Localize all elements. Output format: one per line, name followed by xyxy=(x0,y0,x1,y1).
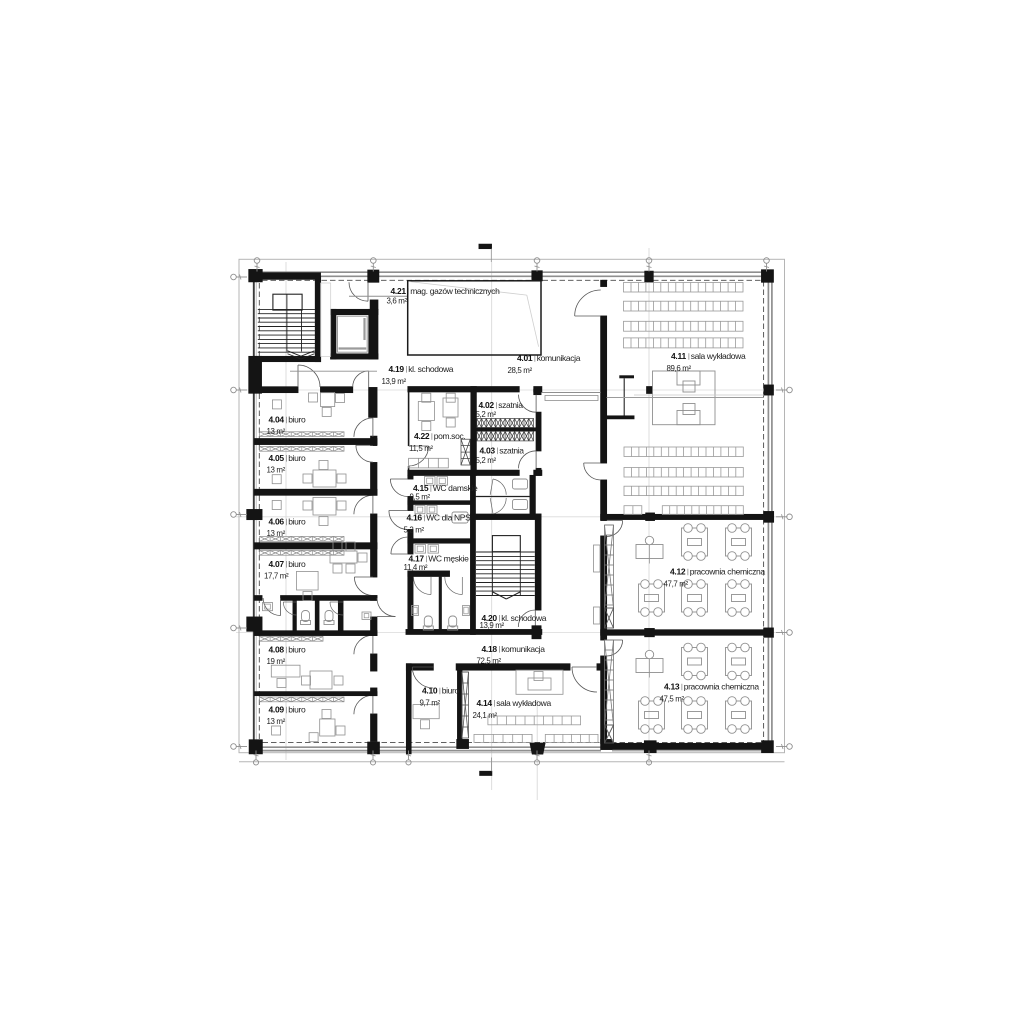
svg-text:kl. schodowa: kl. schodowa xyxy=(501,613,547,623)
svg-text:13,9 m²: 13,9 m² xyxy=(382,377,407,386)
svg-text:sala wykładowa: sala wykładowa xyxy=(691,351,746,361)
svg-text:biuro: biuro xyxy=(442,686,460,696)
svg-text:4.05: 4.05 xyxy=(269,453,285,463)
svg-text:4.18: 4.18 xyxy=(482,644,498,654)
svg-text:komunikacja: komunikacja xyxy=(501,644,545,654)
svg-text:17,7 m²: 17,7 m² xyxy=(264,571,289,580)
svg-text:9,7 m²: 9,7 m² xyxy=(420,698,441,707)
svg-text:4.01: 4.01 xyxy=(517,353,533,363)
svg-text:13 m²: 13 m² xyxy=(267,717,286,726)
svg-text:biuro: biuro xyxy=(288,559,306,569)
svg-text:4.11: 4.11 xyxy=(671,351,686,361)
svg-text:WC męskie: WC męskie xyxy=(428,554,469,564)
svg-text:5,2 m²: 5,2 m² xyxy=(476,410,497,419)
svg-text:28,5 m²: 28,5 m² xyxy=(508,366,533,375)
svg-text:89,6 m²: 89,6 m² xyxy=(667,364,692,373)
svg-text:11,5 m²: 11,5 m² xyxy=(409,444,433,453)
svg-text:13 m²: 13 m² xyxy=(267,529,286,538)
svg-text:4.07: 4.07 xyxy=(269,559,285,569)
svg-text:WC dla NPS: WC dla NPS xyxy=(426,513,471,523)
svg-text:13 m²: 13 m² xyxy=(267,427,286,436)
svg-text:WC damskie: WC damskie xyxy=(433,483,478,493)
svg-text:biuro: biuro xyxy=(288,415,306,425)
svg-text:5,2 m²: 5,2 m² xyxy=(404,525,425,534)
svg-text:9,5 m²: 9,5 m² xyxy=(410,493,431,502)
svg-text:4.12: 4.12 xyxy=(670,567,686,577)
svg-text:4.14: 4.14 xyxy=(477,698,493,708)
svg-text:kl. schodowa: kl. schodowa xyxy=(408,364,454,374)
svg-text:4.19: 4.19 xyxy=(389,364,405,374)
svg-text:4.03: 4.03 xyxy=(480,445,496,455)
svg-text:biuro: biuro xyxy=(288,453,306,463)
svg-text:13,9 m²: 13,9 m² xyxy=(480,621,505,630)
svg-text:pom.soc.: pom.soc. xyxy=(434,431,466,441)
svg-text:szatnia: szatnia xyxy=(498,400,523,410)
svg-text:biuro: biuro xyxy=(288,645,306,655)
svg-text:4.13: 4.13 xyxy=(664,682,680,692)
svg-text:4.15: 4.15 xyxy=(413,483,429,493)
svg-text:4.09: 4.09 xyxy=(269,705,285,715)
svg-text:4.04: 4.04 xyxy=(269,415,285,425)
svg-text:biuro: biuro xyxy=(288,517,306,527)
svg-text:47,5 m²: 47,5 m² xyxy=(660,694,685,703)
svg-text:4.10: 4.10 xyxy=(422,686,438,696)
svg-text:13 m²: 13 m² xyxy=(267,465,286,474)
svg-text:komunikacja: komunikacja xyxy=(537,353,581,363)
svg-text:47,7 m²: 47,7 m² xyxy=(664,579,689,588)
svg-text:24,1 m²: 24,1 m² xyxy=(473,711,498,720)
svg-text:19 m²: 19 m² xyxy=(267,657,286,666)
svg-text:4.21: 4.21 xyxy=(391,286,407,296)
svg-text:5,2 m²: 5,2 m² xyxy=(476,456,497,465)
svg-text:pracownia chemiczna: pracownia chemiczna xyxy=(690,567,766,577)
svg-text:4.06: 4.06 xyxy=(269,517,285,527)
svg-text:szatnia: szatnia xyxy=(499,445,524,455)
svg-text:4.02: 4.02 xyxy=(479,400,495,410)
svg-text:mag. gazów technicznych: mag. gazów technicznych xyxy=(410,286,500,296)
svg-text:4.08: 4.08 xyxy=(269,645,285,655)
svg-text:biuro: biuro xyxy=(288,705,306,715)
svg-text:3,6 m²: 3,6 m² xyxy=(387,296,408,305)
svg-text:4.16: 4.16 xyxy=(407,513,423,523)
svg-text:pracownia chemiczna: pracownia chemiczna xyxy=(684,682,760,692)
svg-text:11,4 m²: 11,4 m² xyxy=(404,563,428,572)
svg-text:4.22: 4.22 xyxy=(414,431,430,441)
svg-text:sala wykładowa: sala wykładowa xyxy=(496,698,551,708)
